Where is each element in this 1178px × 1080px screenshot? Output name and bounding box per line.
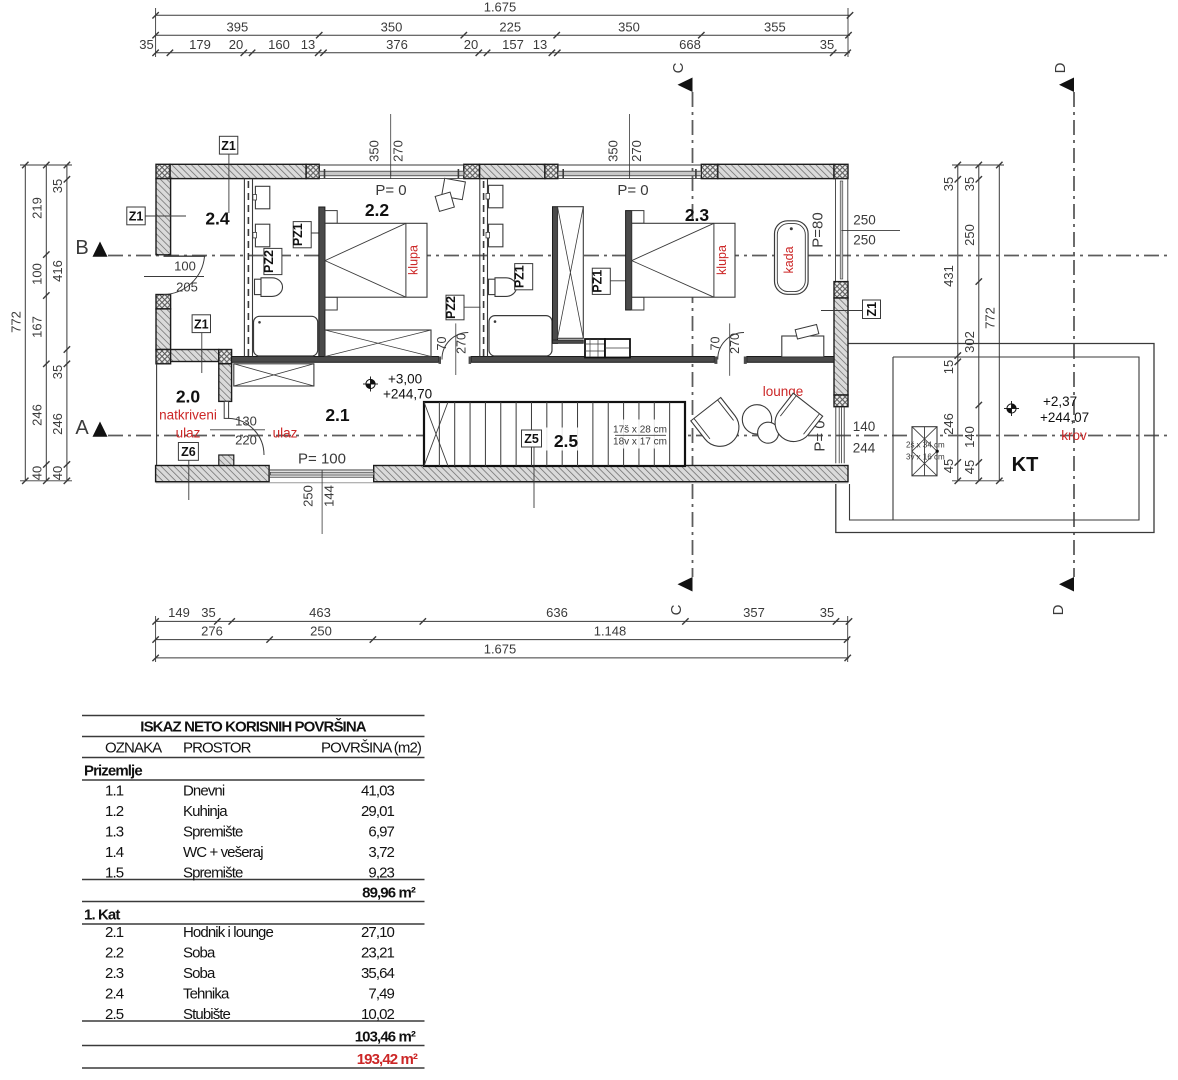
svg-text:70: 70 — [709, 337, 723, 351]
svg-text:35,64: 35,64 — [361, 965, 395, 982]
svg-text:ISKAZ NETO KORISNIH POVRŠINA: ISKAZ NETO KORISNIH POVRŠINA — [140, 718, 366, 736]
svg-text:Z5: Z5 — [524, 432, 539, 446]
svg-text:179: 179 — [189, 37, 211, 52]
svg-text:Tehnika: Tehnika — [183, 986, 230, 1003]
svg-text:C: C — [668, 604, 685, 615]
svg-text:140: 140 — [962, 426, 977, 448]
svg-text:246: 246 — [941, 413, 956, 435]
svg-text:C: C — [670, 62, 687, 73]
svg-text:157: 157 — [502, 37, 524, 52]
svg-text:276: 276 — [201, 623, 223, 638]
svg-text:40: 40 — [30, 466, 45, 480]
svg-text:+244,70: +244,70 — [383, 387, 432, 402]
svg-text:205: 205 — [176, 280, 198, 295]
svg-text:natkriveni: natkriveni — [159, 408, 217, 423]
svg-text:250: 250 — [853, 233, 876, 248]
svg-text:2š x 34 cm: 2š x 34 cm — [906, 441, 945, 450]
svg-text:636: 636 — [546, 605, 568, 620]
svg-text:45: 45 — [962, 460, 977, 474]
svg-text:Soba: Soba — [183, 965, 216, 982]
svg-text:1.675: 1.675 — [484, 642, 517, 657]
svg-text:WC + vešeraj: WC + vešeraj — [183, 844, 263, 861]
svg-text:ulaz: ulaz — [176, 426, 201, 441]
svg-text:270: 270 — [390, 140, 405, 162]
svg-text:10,02: 10,02 — [361, 1006, 395, 1023]
svg-text:41,03: 41,03 — [361, 783, 395, 800]
svg-text:225: 225 — [499, 19, 521, 34]
svg-text:+2,37: +2,37 — [1043, 394, 1077, 409]
svg-text:1.1: 1.1 — [105, 783, 124, 800]
svg-text:13: 13 — [533, 37, 547, 52]
svg-text:Soba: Soba — [183, 945, 216, 962]
svg-text:376: 376 — [386, 37, 408, 52]
svg-text:246: 246 — [30, 404, 45, 426]
svg-text:20: 20 — [229, 37, 243, 52]
svg-text:772: 772 — [9, 311, 24, 333]
svg-text:27,10: 27,10 — [361, 924, 395, 941]
svg-text:17š x 28 cm: 17š x 28 cm — [613, 425, 667, 436]
svg-text:klupa: klupa — [715, 245, 729, 275]
svg-text:250: 250 — [853, 213, 876, 228]
svg-text:PZ1: PZ1 — [291, 223, 305, 246]
svg-text:89,96 m²: 89,96 m² — [362, 885, 416, 902]
svg-text:2.2: 2.2 — [105, 945, 124, 962]
svg-text:ulaz: ulaz — [273, 426, 298, 441]
svg-text:70: 70 — [435, 337, 449, 351]
svg-text:B: B — [75, 237, 88, 259]
svg-text:160: 160 — [268, 37, 290, 52]
svg-text:1.5: 1.5 — [105, 865, 124, 882]
svg-text:1. Kat: 1. Kat — [84, 907, 120, 924]
svg-text:355: 355 — [764, 19, 786, 34]
svg-text:270: 270 — [728, 333, 742, 354]
svg-text:463: 463 — [309, 605, 331, 620]
svg-text:668: 668 — [679, 37, 701, 52]
svg-text:2.0: 2.0 — [176, 387, 201, 407]
svg-text:250: 250 — [301, 485, 316, 507]
svg-text:35: 35 — [201, 605, 215, 620]
svg-text:3v x 16 cm: 3v x 16 cm — [906, 453, 945, 462]
svg-text:350: 350 — [381, 19, 403, 34]
svg-text:D: D — [1050, 604, 1067, 615]
svg-text:P= 0: P= 0 — [617, 182, 648, 199]
svg-text:PZ1: PZ1 — [513, 265, 527, 288]
svg-text:Stubište: Stubište — [183, 1006, 231, 1023]
svg-text:P= 100: P= 100 — [298, 451, 346, 468]
svg-text:772: 772 — [983, 307, 998, 329]
svg-text:1.148: 1.148 — [594, 623, 627, 638]
svg-text:+3,00: +3,00 — [388, 372, 422, 387]
svg-text:9,23: 9,23 — [368, 865, 394, 882]
svg-text:2.5: 2.5 — [105, 1006, 124, 1023]
svg-text:1.4: 1.4 — [105, 844, 124, 861]
svg-text:244: 244 — [853, 441, 876, 456]
svg-text:357: 357 — [743, 605, 765, 620]
svg-text:35: 35 — [820, 37, 834, 52]
svg-text:103,46 m²: 103,46 m² — [355, 1029, 416, 1046]
svg-text:140: 140 — [853, 419, 876, 434]
svg-text:klupa: klupa — [407, 245, 421, 275]
svg-text:100: 100 — [30, 263, 45, 285]
svg-text:Z6: Z6 — [181, 445, 196, 459]
svg-text:220: 220 — [235, 433, 257, 448]
svg-text:7,49: 7,49 — [368, 986, 394, 1003]
svg-text:35: 35 — [50, 365, 65, 379]
svg-text:Z1: Z1 — [865, 302, 879, 317]
svg-text:167: 167 — [30, 316, 45, 338]
svg-text:350: 350 — [605, 140, 620, 162]
svg-text:Z1: Z1 — [129, 210, 144, 224]
svg-text:kada: kada — [782, 246, 796, 273]
svg-text:350: 350 — [618, 19, 640, 34]
svg-text:2.1: 2.1 — [325, 405, 350, 425]
svg-text:20: 20 — [464, 37, 478, 52]
svg-text:40: 40 — [50, 466, 65, 480]
svg-text:35: 35 — [50, 179, 65, 193]
svg-text:Z1: Z1 — [221, 139, 236, 153]
svg-text:+244,07: +244,07 — [1040, 410, 1089, 425]
svg-text:Dnevni: Dnevni — [183, 783, 225, 800]
svg-text:2.1: 2.1 — [105, 924, 124, 941]
svg-text:2.4: 2.4 — [105, 986, 124, 1003]
svg-text:250: 250 — [310, 623, 332, 638]
svg-text:PZ2: PZ2 — [262, 250, 276, 273]
svg-text:193,42 m²: 193,42 m² — [357, 1051, 418, 1068]
svg-text:A: A — [75, 417, 89, 439]
svg-text:13: 13 — [301, 37, 315, 52]
svg-text:PZ2: PZ2 — [444, 296, 458, 319]
svg-text:Prizemlje: Prizemlje — [84, 763, 142, 780]
svg-text:PZ1: PZ1 — [590, 270, 604, 293]
svg-text:OZNAKA: OZNAKA — [105, 740, 162, 757]
svg-text:219: 219 — [30, 197, 45, 219]
svg-text:144: 144 — [322, 485, 337, 507]
svg-text:2.3: 2.3 — [105, 965, 124, 982]
svg-text:Kuhinja: Kuhinja — [183, 803, 228, 820]
svg-text:krov: krov — [1061, 428, 1087, 443]
svg-text:416: 416 — [50, 260, 65, 282]
svg-text:35: 35 — [941, 177, 956, 191]
svg-text:Z1: Z1 — [194, 318, 209, 332]
svg-text:1.3: 1.3 — [105, 824, 124, 841]
svg-text:P=80: P=80 — [810, 212, 827, 247]
svg-text:35: 35 — [820, 605, 834, 620]
svg-text:431: 431 — [941, 265, 956, 287]
svg-text:270: 270 — [455, 333, 469, 354]
svg-text:270: 270 — [629, 140, 644, 162]
svg-text:29,01: 29,01 — [361, 803, 395, 820]
svg-text:6,97: 6,97 — [368, 824, 394, 841]
svg-text:KT: KT — [1012, 454, 1039, 476]
svg-text:35: 35 — [962, 177, 977, 191]
svg-text:D: D — [1052, 62, 1069, 73]
svg-text:2.2: 2.2 — [365, 200, 390, 220]
svg-text:246: 246 — [50, 413, 65, 435]
svg-text:302: 302 — [962, 331, 977, 353]
svg-text:100: 100 — [174, 259, 196, 274]
svg-text:Hodnik i lounge: Hodnik i lounge — [183, 924, 273, 941]
svg-text:2.3: 2.3 — [685, 205, 710, 225]
svg-text:350: 350 — [367, 140, 382, 162]
svg-text:Spremište: Spremište — [183, 865, 243, 882]
svg-text:POVRŠINA (m2): POVRŠINA (m2) — [321, 740, 422, 757]
svg-text:18v x 17 cm: 18v x 17 cm — [613, 437, 667, 448]
svg-text:395: 395 — [227, 19, 249, 34]
svg-text:35: 35 — [139, 37, 153, 52]
svg-text:2.5: 2.5 — [554, 431, 579, 451]
svg-text:P= 0: P= 0 — [375, 182, 406, 199]
svg-text:Spremište: Spremište — [183, 824, 243, 841]
svg-text:149: 149 — [168, 605, 190, 620]
svg-text:PROSTOR: PROSTOR — [183, 740, 252, 757]
svg-text:1.675: 1.675 — [484, 0, 517, 15]
svg-text:3,72: 3,72 — [368, 844, 394, 861]
svg-text:1.2: 1.2 — [105, 803, 124, 820]
svg-text:2.4: 2.4 — [205, 209, 230, 229]
svg-text:15: 15 — [941, 360, 956, 374]
svg-text:130: 130 — [235, 414, 257, 429]
svg-text:23,21: 23,21 — [361, 945, 395, 962]
svg-text:250: 250 — [962, 224, 977, 246]
